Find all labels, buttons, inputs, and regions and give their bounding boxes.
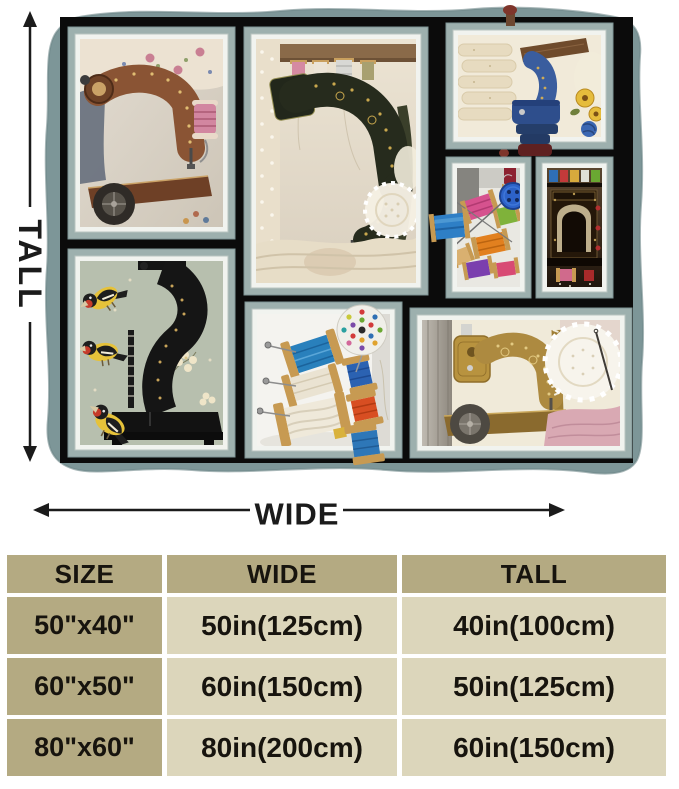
table-row-wide: 60in(150cm) [167, 658, 397, 715]
panel-spools-pincushion [245, 302, 402, 466]
wide-label: WIDE [255, 497, 340, 532]
panel-golden-sewing-machine [410, 308, 632, 458]
table-row-tall: 40in(100cm) [402, 597, 666, 654]
table-header-wide: WIDE [167, 555, 397, 593]
panel-bronze-sewing-machine [68, 27, 235, 239]
table-row-wide: 50in(125cm) [167, 597, 397, 654]
table-header-tall: TALL [402, 555, 666, 593]
machine-base-overflow [518, 134, 552, 156]
panel-dark-green-sewing-machine [244, 27, 428, 295]
table-row-wide: 80in(200cm) [167, 719, 397, 776]
table-row-tall: 50in(125cm) [402, 658, 666, 715]
table-header-size: SIZE [7, 555, 162, 593]
tall-label: TALL [12, 219, 48, 310]
panel-dark-nook-sewing-machine [536, 157, 613, 298]
table-row-size: 60"x50" [7, 658, 162, 715]
panel-blue-sewing-machine [446, 5, 613, 156]
table-row-size: 80"x60" [7, 719, 162, 776]
product-infographic: TALL WIDE SIZE WIDE TALL 50"x40" 50in(12… [0, 0, 679, 789]
blanket-product-image: TALL WIDE [0, 0, 679, 545]
panel-goldfinch-sewing-machine [68, 249, 235, 457]
table-row-tall: 60in(150cm) [402, 719, 666, 776]
table-row-size: 50"x40" [7, 597, 162, 654]
size-table: SIZE WIDE TALL 50"x40" 50in(125cm) 40in(… [7, 555, 666, 776]
